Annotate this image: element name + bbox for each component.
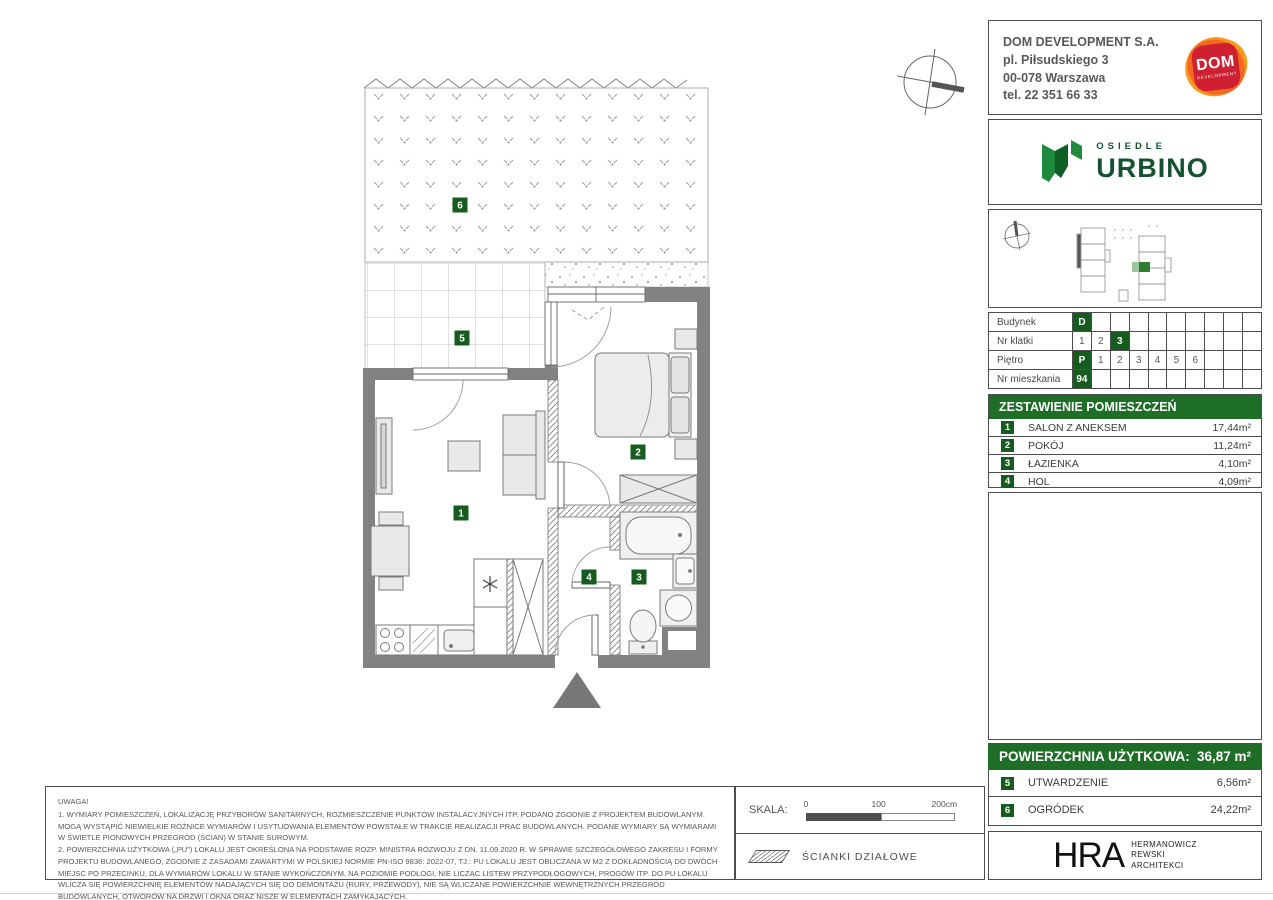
label-klatka: Nr klatki <box>989 332 1073 351</box>
room-row-salon: 1 SALON Z ANEKSEM 17,44m² <box>989 419 1261 437</box>
apartment-plan-sheet: 1 2 3 4 5 6 DOM DEVELOPMENT S.A. pl. Pił… <box>0 0 1273 900</box>
room-area-salon: 17,44m² <box>1212 422 1261 434</box>
rooms-list-box: ZESTAWIENIE POMIESZCZEŃ 1 SALON Z ANEKSE… <box>988 394 1262 488</box>
room-num-2: 2 <box>1001 439 1014 452</box>
spacer-box <box>988 492 1262 740</box>
row-pietro: Piętro P 1 2 3 4 5 6 <box>989 351 1262 370</box>
floor-plan-drawing: 1 2 3 4 5 6 <box>340 20 990 740</box>
svg-text:2: 2 <box>635 448 641 459</box>
room-num-3: 3 <box>1001 457 1014 470</box>
architect-line1: HERMANOWICZ <box>1131 840 1197 850</box>
partition-legend-label: ŚCIANKI DZIAŁOWE <box>802 851 918 863</box>
cell-budynek-value: D <box>1073 313 1092 332</box>
partition-wall-icon <box>748 850 790 863</box>
terrace-area <box>365 262 545 370</box>
room-area-hol: 4,09m² <box>1218 476 1261 488</box>
label-pietro: Piętro <box>989 351 1073 370</box>
architect-abbr: HRA <box>1053 836 1124 876</box>
scale-label: SKALA: <box>749 804 788 816</box>
scale-segment-filled <box>806 813 881 821</box>
unit-info-table: Budynek D Nr klatki 1 2 3 Piętro P 1 2 3… <box>988 312 1262 389</box>
outdoor-row-utwardzenie: 5 UTWARDZENIE 6,56m² <box>989 770 1261 797</box>
notes-title: UWAGA! <box>58 796 722 808</box>
scale-tick-200: 200cm <box>932 799 958 809</box>
notes-item-2: 2. POWIERZCHNIA UŻYTKOWA („PU”) LOKALU J… <box>58 844 722 900</box>
garden-area <box>365 88 708 262</box>
rooms-header: ZESTAWIENIE POMIESZCZEŃ <box>989 395 1261 419</box>
estate-name: URBINO <box>1096 153 1209 184</box>
label-budynek: Budynek <box>989 313 1073 332</box>
room-num-4: 4 <box>1001 475 1014 488</box>
svg-text:6: 6 <box>457 201 463 212</box>
garden-fence <box>364 79 687 88</box>
outdoor-num-6: 6 <box>1001 804 1014 817</box>
outdoor-name-ogrodek: OGRÓDEK <box>1028 804 1211 816</box>
room-area-lazienka: 4,10m² <box>1218 458 1261 470</box>
room-row-lazienka: 3 ŁAZIENKA 4,10m² <box>989 455 1261 473</box>
outdoor-list-box: 5 UTWARDZENIE 6,56m² 6 OGRÓDEK 24,22m² <box>988 769 1262 826</box>
cell-klatka-selected: 3 <box>1110 332 1129 351</box>
svg-text:3: 3 <box>636 573 642 584</box>
outdoor-area-utwardzenie: 6,56m² <box>1217 777 1261 789</box>
label-mieszkanie: Nr mieszkania <box>989 370 1073 389</box>
room-name-pokoj: POKÓJ <box>1028 440 1213 452</box>
room-name-lazienka: ŁAZIENKA <box>1028 458 1218 470</box>
unit-info-table-box: Budynek D Nr klatki 1 2 3 Piętro P 1 2 3… <box>988 312 1262 390</box>
svg-text:1: 1 <box>458 509 464 520</box>
scale-tick-100: 100 <box>872 799 886 809</box>
unit-highlight <box>1132 262 1150 272</box>
cell-mieszkanie-value: 94 <box>1073 370 1092 389</box>
logo-blob-center: DOM DEVELOPMENT <box>1190 41 1241 92</box>
room-name-salon: SALON Z ANEKSEM <box>1028 422 1212 434</box>
scale-bar: 0 100 200cm <box>806 799 956 825</box>
notes-item-1: 1. WYMIARY POMIESZCZEŃ, LOKALIZACJĘ PRZY… <box>58 809 722 844</box>
building-left-outline <box>1077 228 1110 292</box>
scale-tick-0: 0 <box>804 799 809 809</box>
row-klatka: Nr klatki 1 2 3 <box>989 332 1262 351</box>
bedroom-furniture <box>595 329 697 503</box>
svg-text:5: 5 <box>459 334 465 345</box>
room-row-hol: 4 HOL 4,09m² <box>989 473 1261 490</box>
site-plan-box <box>988 209 1262 308</box>
paving-strip <box>545 262 708 287</box>
architect-line3: ARCHITEKCI <box>1131 861 1197 871</box>
row-budynek: Budynek D <box>989 313 1262 332</box>
outdoor-num-5: 5 <box>1001 777 1014 790</box>
urbino-logo-icon <box>1041 138 1083 186</box>
outdoor-row-ogrodek: 6 OGRÓDEK 24,22m² <box>989 797 1261 823</box>
architect-line2: REWSKI <box>1131 850 1197 860</box>
total-area-label: POWIERZCHNIA UŻYTKOWA: <box>999 749 1190 764</box>
total-area-value: 36,87 m² <box>1197 749 1251 764</box>
svg-text:4: 4 <box>586 573 592 584</box>
cell-pietro-selected: P <box>1073 351 1092 370</box>
company-info-box: DOM DEVELOPMENT S.A. pl. Piłsudskiego 3 … <box>988 20 1262 115</box>
estate-prefix: OSIEDLE <box>1096 141 1209 152</box>
legal-notes-box: UWAGA! 1. WYMIARY POMIESZCZEŃ, LOKALIZAC… <box>45 786 735 880</box>
scale-segment-empty <box>881 813 955 821</box>
total-area-bar: POWIERZCHNIA UŻYTKOWA: 36,87 m² <box>988 743 1262 769</box>
outdoor-name-utwardzenie: UTWARDZENIE <box>1028 777 1217 789</box>
shaft-niche <box>668 631 696 650</box>
partition-legend-box: ŚCIANKI DZIAŁOWE <box>735 833 985 880</box>
row-mieszkanie: Nr mieszkania 94 <box>989 370 1262 389</box>
room-name-hol: HOL <box>1028 476 1218 488</box>
site-plan-map <box>989 210 1261 307</box>
page-bottom-rule <box>0 893 1273 894</box>
compass-icon <box>897 49 964 115</box>
site-compass-icon <box>1003 221 1031 250</box>
scale-box: SKALA: 0 100 200cm <box>735 786 985 834</box>
room-num-1: 1 <box>1001 421 1014 434</box>
architect-box: HRA HERMANOWICZ REWSKI ARCHITEKCI <box>988 831 1262 880</box>
estate-logo-box: OSIEDLE URBINO <box>988 119 1262 205</box>
dom-development-logo: DOM DEVELOPMENT <box>1183 34 1249 100</box>
room-area-pokoj: 11,24m² <box>1213 440 1261 452</box>
room-row-pokoj: 2 POKÓJ 11,24m² <box>989 437 1261 455</box>
outdoor-area-ogrodek: 24,22m² <box>1211 804 1261 816</box>
entrance-arrow-icon <box>553 672 601 708</box>
